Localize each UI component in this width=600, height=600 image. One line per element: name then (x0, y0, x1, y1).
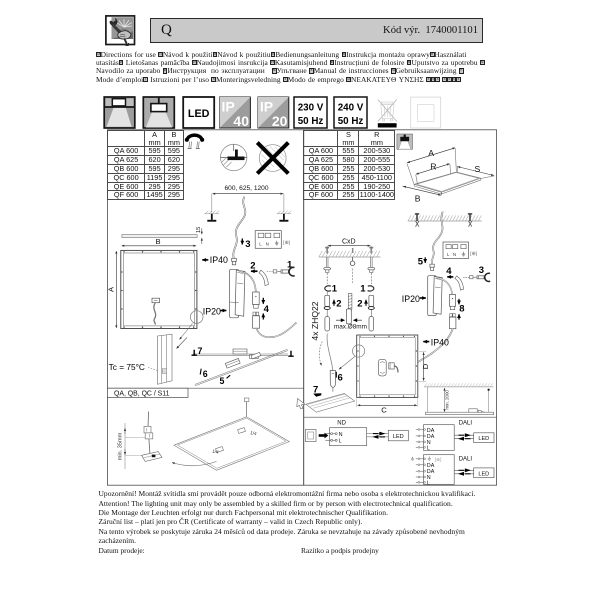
svg-text:ND: ND (337, 420, 346, 426)
svg-text:B: B (155, 237, 160, 246)
svg-text:DA: DA (427, 428, 435, 434)
svg-text:min. 2000: min. 2000 (444, 390, 449, 410)
svg-text:IP40: IP40 (431, 337, 449, 347)
svg-text:8: 8 (459, 304, 464, 315)
svg-text:IP20: IP20 (203, 306, 221, 316)
svg-text:[⊕]: [⊕] (470, 251, 477, 257)
svg-text:50 Hz: 50 Hz (338, 116, 364, 127)
svg-text:N: N (453, 252, 456, 257)
svg-text:2: 2 (357, 298, 362, 309)
svg-text:DA: DA (427, 463, 435, 469)
svg-text:B: B (415, 194, 421, 204)
svg-text:DALI: DALI (459, 420, 473, 426)
svg-text:L: L (447, 252, 450, 257)
svg-text:4: 4 (264, 304, 270, 315)
svg-text:2: 2 (250, 260, 255, 271)
svg-text:[⊕]: [⊕] (283, 240, 290, 246)
svg-text:20: 20 (272, 113, 288, 129)
svg-text:R: R (430, 162, 436, 172)
svg-text:7: 7 (198, 346, 203, 356)
svg-text:240 V: 240 V (338, 103, 364, 114)
svg-text:IP40: IP40 (210, 255, 228, 265)
svg-text:L: L (427, 480, 430, 486)
svg-text:S: S (475, 164, 481, 174)
svg-text:LED: LED (393, 434, 404, 440)
svg-text:40: 40 (233, 113, 249, 129)
svg-text:CxD: CxD (342, 238, 356, 245)
svg-text:QA, QB, QC / S11: QA, QB, QC / S11 (114, 390, 170, 397)
svg-text:A: A (107, 286, 116, 292)
svg-text:4: 4 (446, 266, 452, 277)
svg-text:2: 2 (336, 298, 341, 309)
svg-text:L: L (339, 439, 342, 445)
svg-text:LED: LED (478, 471, 489, 477)
svg-text:L: L (259, 241, 262, 246)
svg-text:1: 1 (360, 284, 366, 295)
svg-text:DALI: DALI (459, 456, 473, 462)
svg-text:D: D (421, 363, 430, 369)
svg-text:C: C (381, 405, 387, 414)
svg-text:5: 5 (220, 376, 225, 386)
svg-text:15: 15 (196, 227, 202, 233)
svg-text:IP20: IP20 (402, 294, 420, 304)
svg-text:3: 3 (479, 265, 484, 276)
svg-text:[⊕]: [⊕] (435, 457, 441, 462)
svg-text:A: A (428, 148, 434, 158)
svg-text:LED: LED (188, 108, 210, 120)
svg-text:N: N (339, 432, 343, 438)
svg-text:1: 1 (332, 284, 338, 295)
svg-text:3: 3 (245, 239, 250, 250)
svg-text:600, 625, 1200: 600, 625, 1200 (225, 185, 269, 192)
svg-text:230 V: 230 V (298, 103, 324, 114)
svg-text:max.Ø8mm: max.Ø8mm (334, 323, 367, 330)
svg-text:4x ZHQ22: 4x ZHQ22 (310, 301, 320, 340)
svg-text:LED: LED (478, 436, 489, 442)
svg-text:L: L (427, 446, 430, 452)
svg-text:min. 35mm: min. 35mm (118, 432, 124, 460)
svg-text:50 Hz: 50 Hz (298, 116, 324, 127)
svg-text:5: 5 (418, 257, 424, 268)
svg-text:Tc = 75°C: Tc = 75°C (109, 362, 145, 372)
svg-text:6: 6 (203, 369, 208, 379)
svg-text:6: 6 (338, 372, 343, 383)
svg-text:N: N (266, 241, 269, 246)
